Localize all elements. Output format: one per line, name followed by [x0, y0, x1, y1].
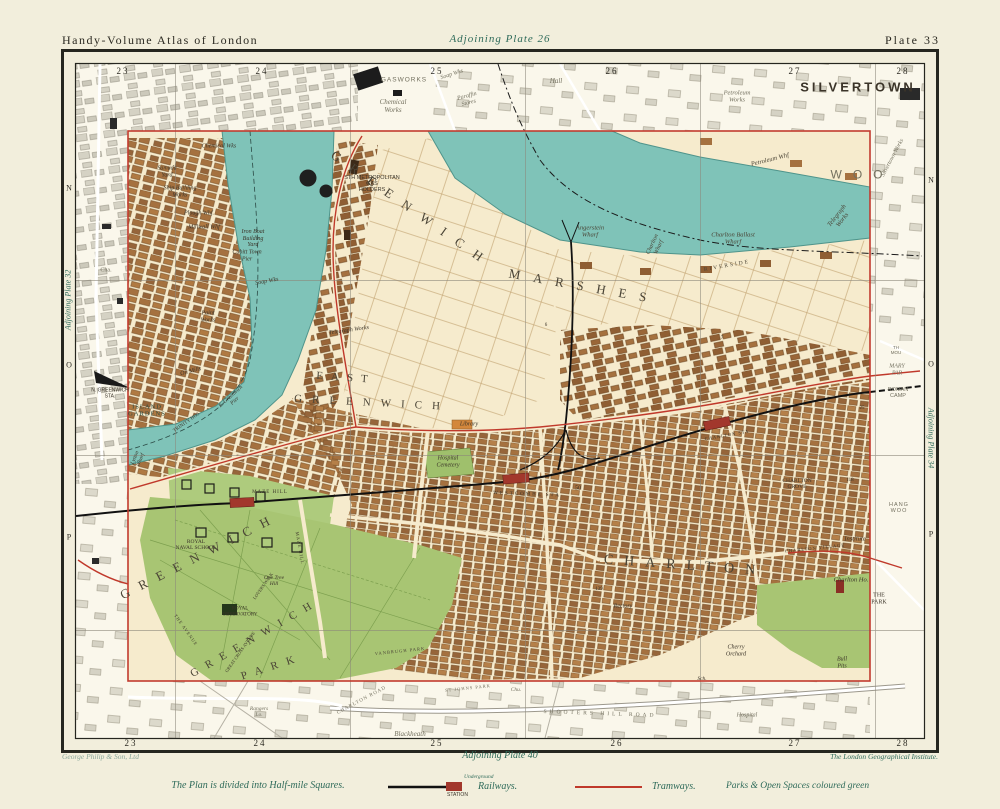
atlas-page: { "header": { "left": "Handy-Volume Atla… — [0, 0, 1000, 809]
grid-top-25: 25 — [431, 66, 444, 76]
adjoining-plate-bottom: Adjoining Plate 40 — [462, 750, 538, 761]
grid-bottom-24: 24 — [254, 738, 267, 748]
legend-railways-label: Railways. — [478, 781, 517, 792]
grid-top-23: 23 — [117, 66, 130, 76]
atlas-title: Handy-Volume Atlas of London — [62, 33, 258, 48]
grid-right-p: P — [929, 530, 933, 539]
grid-bottom-27: 27 — [789, 738, 802, 748]
grid-bottom-26: 26 — [611, 738, 624, 748]
grid-top-24: 24 — [256, 66, 269, 76]
charlton-house-building — [836, 580, 844, 593]
grid-bottom-25: 25 — [431, 738, 444, 748]
library-building — [452, 420, 472, 429]
maze-hill-station — [230, 497, 254, 507]
publisher-credit: George Philip & Son, Ltd — [62, 752, 139, 761]
map-graphic — [0, 0, 1000, 809]
grid-top-26: 26 — [606, 66, 619, 76]
royal-observatory-building — [222, 604, 237, 615]
grid-right-o: O — [928, 360, 934, 369]
grid-left-p: P — [67, 533, 71, 542]
legend-station-block — [446, 782, 462, 791]
grid-top-28: 28 — [897, 66, 910, 76]
institute-credit: The London Geographical Institute. — [830, 752, 938, 761]
half-mile-note: The Plan is divided into Half-mile Squar… — [171, 780, 344, 791]
legend-station-label: STATION — [447, 792, 468, 798]
grid-left-n: N — [66, 184, 72, 193]
margin-right-urban — [870, 131, 924, 341]
legend-parks-note: Parks & Open Spaces coloured green — [726, 781, 869, 791]
hospital-cemetery-green — [424, 448, 474, 478]
grid-right-n: N — [928, 176, 934, 185]
grid-left-o: O — [66, 361, 72, 370]
legend-tramways-label: Tramways. — [652, 781, 696, 792]
grid-bottom-28: 28 — [897, 738, 910, 748]
plate-number: Plate 33 — [885, 33, 940, 48]
adjoining-plate-top: Adjoining Plate 26 — [449, 33, 550, 45]
grid-bottom-23: 23 — [125, 738, 138, 748]
margin-top-urban — [128, 64, 358, 131]
legend-underground-label: Underground — [464, 774, 494, 780]
gas-holder-2 — [320, 185, 333, 198]
grid-top-27: 27 — [789, 66, 802, 76]
gas-holder-1 — [300, 170, 317, 187]
